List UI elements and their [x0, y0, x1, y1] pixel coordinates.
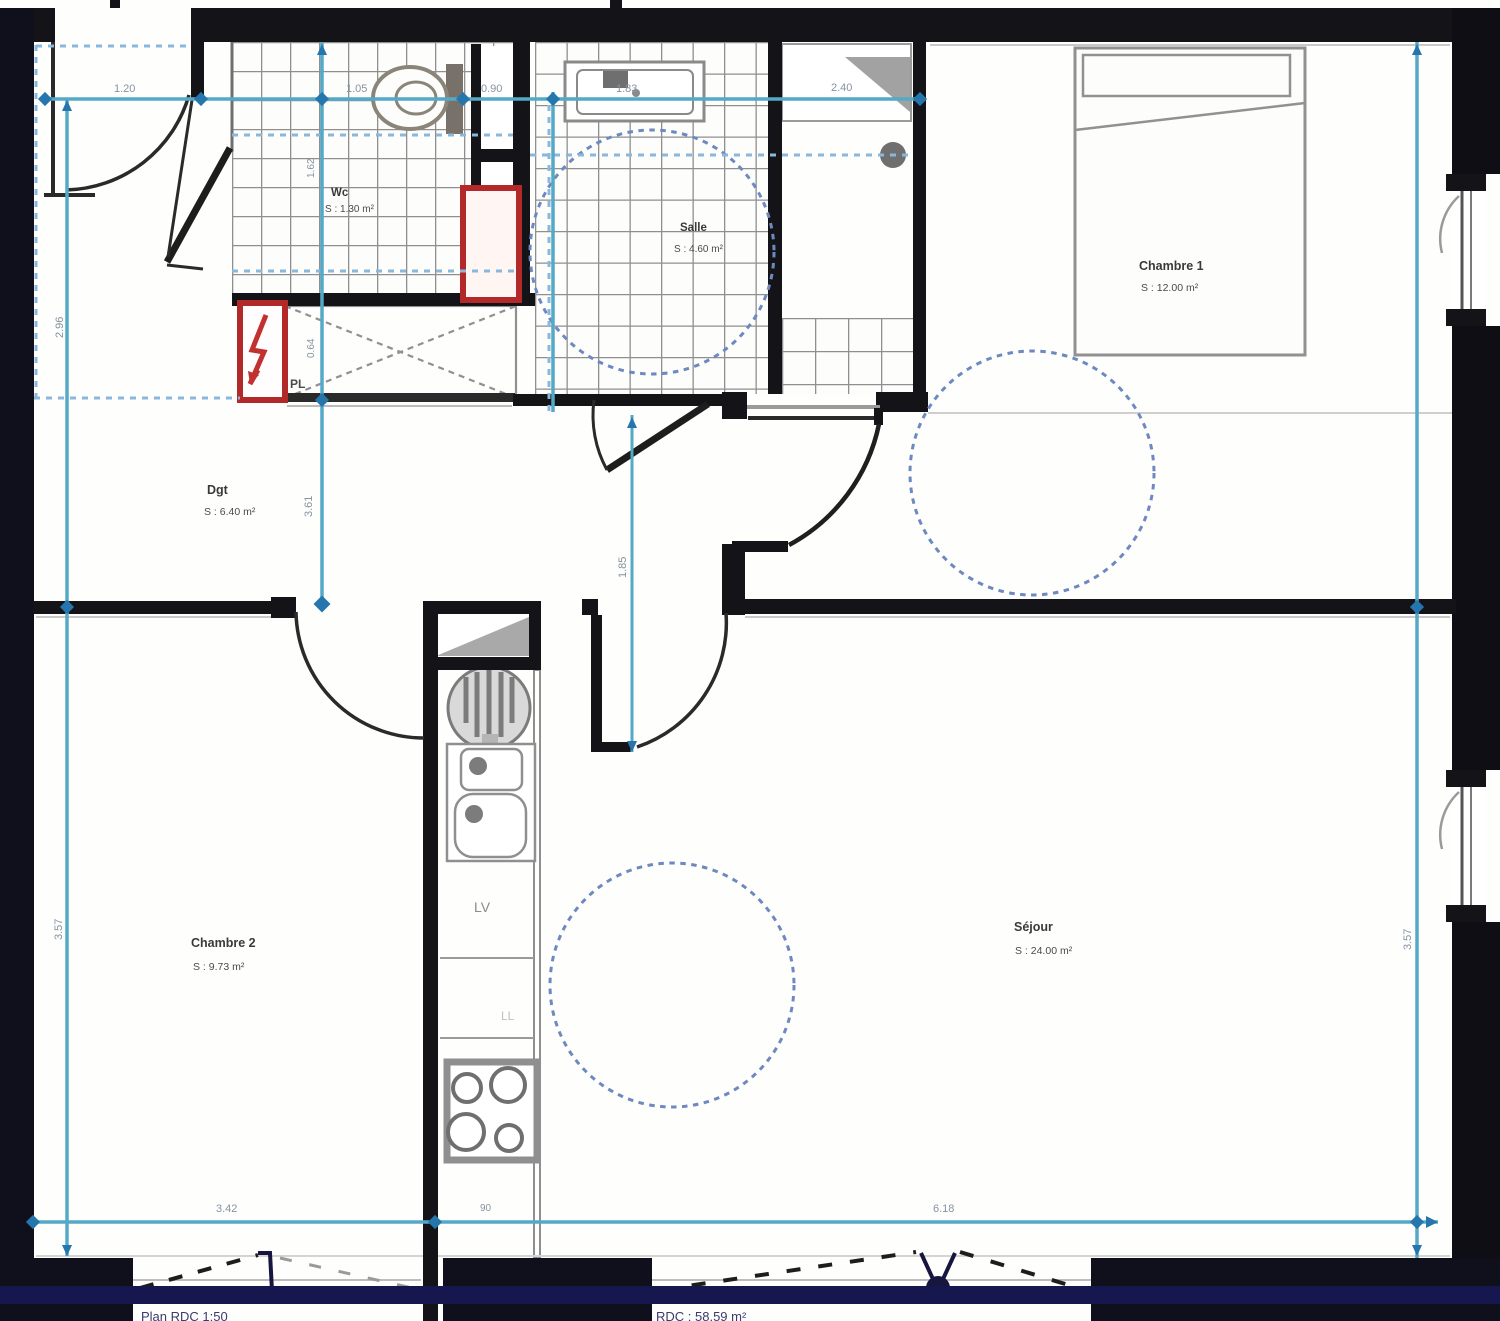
svg-text:3.57: 3.57: [1402, 929, 1414, 950]
svg-text:LL: LL: [501, 1009, 515, 1023]
svg-text:0.64: 0.64: [306, 338, 317, 358]
svg-text:S : 9.73 m²: S : 9.73 m²: [193, 961, 245, 973]
svg-text:Wc: Wc: [331, 187, 349, 199]
svg-text:1.83: 1.83: [616, 83, 637, 95]
svg-text:S : 4.60 m²: S : 4.60 m²: [674, 244, 724, 255]
svg-text:Séjour: Séjour: [1014, 920, 1053, 934]
svg-text:6.18: 6.18: [933, 1203, 954, 1215]
svg-text:0.90: 0.90: [481, 83, 502, 95]
svg-text:3.42: 3.42: [216, 1203, 237, 1215]
svg-text:2.40: 2.40: [831, 82, 852, 94]
svg-text:LV: LV: [474, 899, 491, 915]
svg-text:Plan RDC 1:50: Plan RDC 1:50: [141, 1309, 228, 1321]
svg-text:S : 24.00 m²: S : 24.00 m²: [1015, 945, 1073, 957]
svg-text:1.05: 1.05: [346, 83, 367, 95]
svg-text:1.85: 1.85: [617, 557, 629, 578]
svg-text:3.57: 3.57: [53, 919, 65, 940]
svg-text:3.61: 3.61: [303, 496, 315, 517]
svg-text:Chambre 2: Chambre 2: [191, 936, 256, 950]
svg-text:1.20: 1.20: [114, 83, 135, 95]
svg-text:PL: PL: [290, 377, 305, 391]
svg-text:S : 12.00 m²: S : 12.00 m²: [1141, 282, 1199, 294]
svg-text:RDC : 58.59 m²: RDC : 58.59 m²: [656, 1309, 747, 1321]
svg-text:90: 90: [480, 1203, 492, 1214]
svg-text:Chambre 1: Chambre 1: [1139, 259, 1204, 273]
svg-text:Salle: Salle: [680, 222, 707, 234]
svg-text:2.96: 2.96: [54, 317, 66, 338]
svg-text:1.62: 1.62: [306, 158, 317, 178]
svg-text:Dgt: Dgt: [207, 483, 229, 497]
svg-text:S : 1.30 m²: S : 1.30 m²: [325, 204, 375, 215]
svg-text:S : 6.40 m²: S : 6.40 m²: [204, 506, 256, 518]
